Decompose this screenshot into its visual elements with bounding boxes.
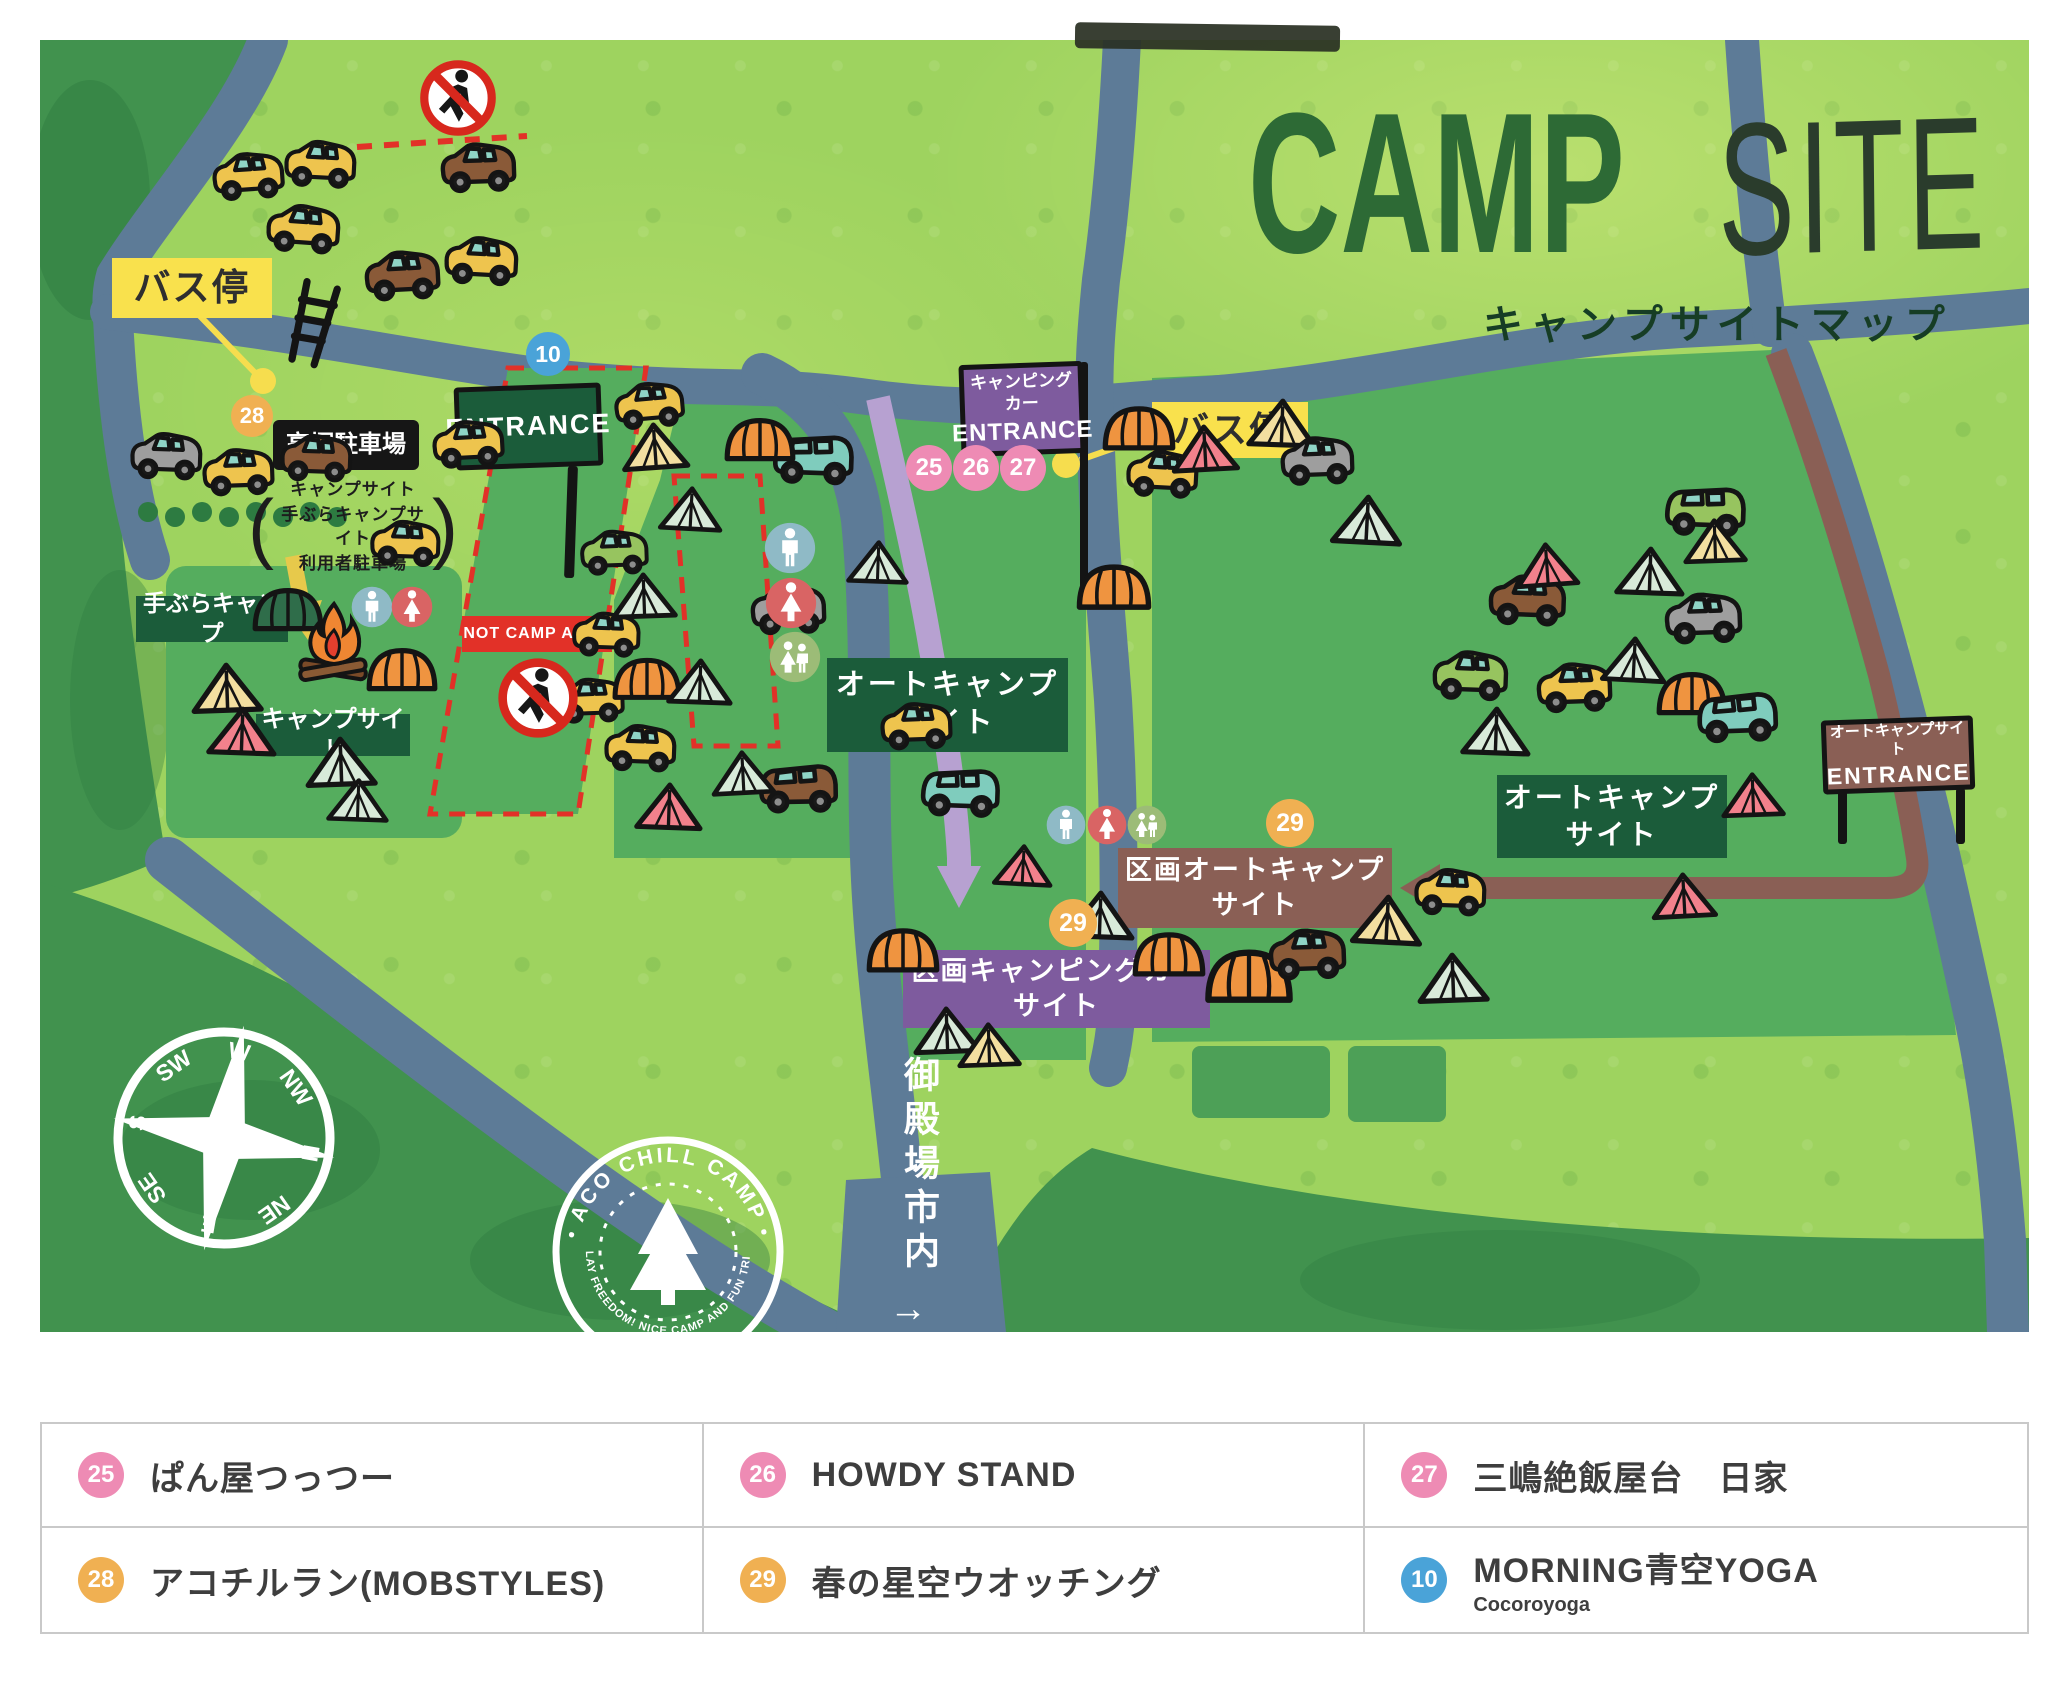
tent-icon (709, 746, 778, 805)
tent-icon (205, 703, 279, 765)
bus-stop-label-left: バス停 (112, 258, 272, 318)
no-walking-icon (495, 655, 581, 746)
legend-text: アコチルラン(MOBSTYLES) (150, 1556, 605, 1605)
tent-icon (1415, 949, 1491, 1013)
title-site: SITE (1717, 89, 1989, 285)
camper-entrance-line1: キャンピングカー (964, 369, 1079, 417)
tent-icon (609, 569, 679, 628)
legend-badge-27: 27 (1401, 1452, 1447, 1498)
marker-badge-29: 29 (1049, 899, 1097, 947)
legend-item-27: 27三嶋絶飯屋台 日家 (1365, 1424, 2027, 1528)
dome-tent-icon (864, 922, 942, 982)
car-icon (1427, 643, 1513, 709)
restroom-women-icon (391, 586, 433, 633)
kukaku-auto-line2: サイト (1212, 888, 1299, 923)
tent-icon (665, 655, 735, 714)
tent-icon (1328, 490, 1405, 555)
legend-text: 三嶋絶飯屋台 日家 (1473, 1451, 1788, 1500)
car-icon (599, 717, 681, 780)
legend-item-25: 25ぱん屋つっつー (42, 1424, 704, 1528)
camper-entrance-line2: ENTRANCE (952, 413, 1094, 449)
dome-tent-icon (1074, 558, 1154, 619)
dome-tent-icon (1130, 926, 1208, 986)
car-icon (197, 441, 279, 504)
legend-badge-25: 25 (78, 1452, 124, 1498)
restroom-men-icon (351, 586, 393, 633)
brush-mark (1075, 22, 1340, 52)
legend-item-29: 29春の星空ウオッチング (704, 1528, 1366, 1632)
restroom-family-icon (1127, 805, 1167, 850)
auto-right-line1: オートキャンプ (1504, 780, 1720, 816)
kukaku-camper-line2: サイト (1013, 989, 1100, 1024)
marker-badge-10: 10 (526, 332, 570, 376)
title-camp: CAMP (1248, 84, 1625, 284)
car-icon (426, 412, 509, 476)
page-title: CAMPSITE (1248, 84, 2069, 284)
tent-icon (1459, 703, 1533, 765)
tent-icon (618, 418, 692, 481)
gotemba-road-label: 御殿場市内 (893, 1056, 945, 1276)
no-walking-icon (417, 57, 499, 144)
auto-camp-right-label: オートキャンプ サイト (1497, 775, 1727, 858)
car-icon (1659, 585, 1747, 652)
legend-item-28: 28アコチルラン(MOBSTYLES) (42, 1528, 704, 1632)
legend-badge-28: 28 (78, 1557, 124, 1603)
camper-van-icon (915, 756, 1005, 825)
legend-item-26: 26HOWDY STAND (704, 1424, 1366, 1528)
car-icon (275, 427, 357, 490)
car-icon (125, 425, 207, 488)
bus-stop-left-text: バス停 (134, 264, 251, 312)
tent-icon (633, 779, 705, 840)
restroom-women-icon (1087, 805, 1127, 850)
tent-icon (1681, 515, 1749, 573)
car-icon (358, 242, 445, 309)
restroom-family-icon (769, 631, 821, 688)
car-icon (1263, 921, 1351, 988)
tent-icon (845, 537, 911, 593)
legend-badge-26: 26 (740, 1452, 786, 1498)
car-icon (875, 695, 957, 758)
legend-badge-29: 29 (740, 1557, 786, 1603)
marker-badge-29: 29 (1266, 799, 1314, 847)
dome-tent-icon (364, 642, 440, 701)
camper-entrance-sign: キャンピングカー ENTRANCE (958, 361, 1085, 457)
tent-icon (1169, 420, 1242, 482)
restroom-men-icon (764, 522, 816, 579)
marker-badge-25: 25 (906, 445, 952, 491)
legend-text: 春の星空ウオッチング (812, 1556, 1162, 1605)
paren-open: ( (248, 492, 274, 562)
campsite-map-page: { "title": {"camp": "CAMP", "site": "SIT… (0, 0, 2069, 1695)
marker-badge-26: 26 (953, 445, 999, 491)
car-icon (1275, 429, 1359, 493)
car-icon (1409, 861, 1491, 924)
camper-van-icon (1691, 680, 1783, 750)
legend-table: 25ぱん屋つっつー26HOWDY STAND27三嶋絶飯屋台 日家28アコチルラ… (40, 1422, 2029, 1634)
dome-tent-icon (722, 412, 798, 471)
kukaku-auto-line1: 区画オートキャンプ (1125, 853, 1385, 888)
gotemba-arrow: → (889, 1288, 927, 1331)
car-icon (438, 228, 523, 294)
legend-text: MORNING青空YOGA (1473, 1543, 1818, 1592)
marker-badge-28: 28 (231, 395, 273, 437)
car-icon (260, 195, 346, 262)
legend-text: ぱん屋つっつー (150, 1451, 395, 1500)
auto-entrance-line1: オートキャンプサイト (1826, 718, 1969, 762)
legend-badge-10: 10 (1401, 1557, 1447, 1603)
tent-icon (955, 1019, 1023, 1077)
car-icon (435, 135, 521, 201)
auto-entrance-leg-left (1838, 788, 1847, 844)
legend-item-10: 10MORNING青空YOGACocoroyoga (1365, 1528, 2027, 1632)
tent-icon (325, 775, 391, 831)
page-subtitle: キャンプサイトマップ (1483, 292, 1952, 350)
auto-entrance-sign: オートキャンプサイト ENTRANCE (1821, 715, 1975, 794)
car-icon (278, 132, 361, 196)
tent-icon (657, 482, 726, 541)
tent-icon (1719, 769, 1787, 827)
legend-subtext: Cocoroyoga (1473, 1594, 1818, 1617)
car-icon (365, 513, 445, 574)
auto-entrance-line2: ENTRANCE (1826, 757, 1971, 792)
auto-right-line2: サイト (1565, 817, 1658, 853)
tent-icon (1512, 538, 1582, 598)
legend-text: HOWDY STAND (812, 1456, 1077, 1495)
restroom-women-icon (765, 577, 817, 634)
tent-icon (1649, 868, 1720, 928)
restroom-men-icon (1046, 805, 1086, 850)
marker-badge-27: 27 (1000, 445, 1046, 491)
auto-entrance-leg-right (1956, 788, 1965, 844)
